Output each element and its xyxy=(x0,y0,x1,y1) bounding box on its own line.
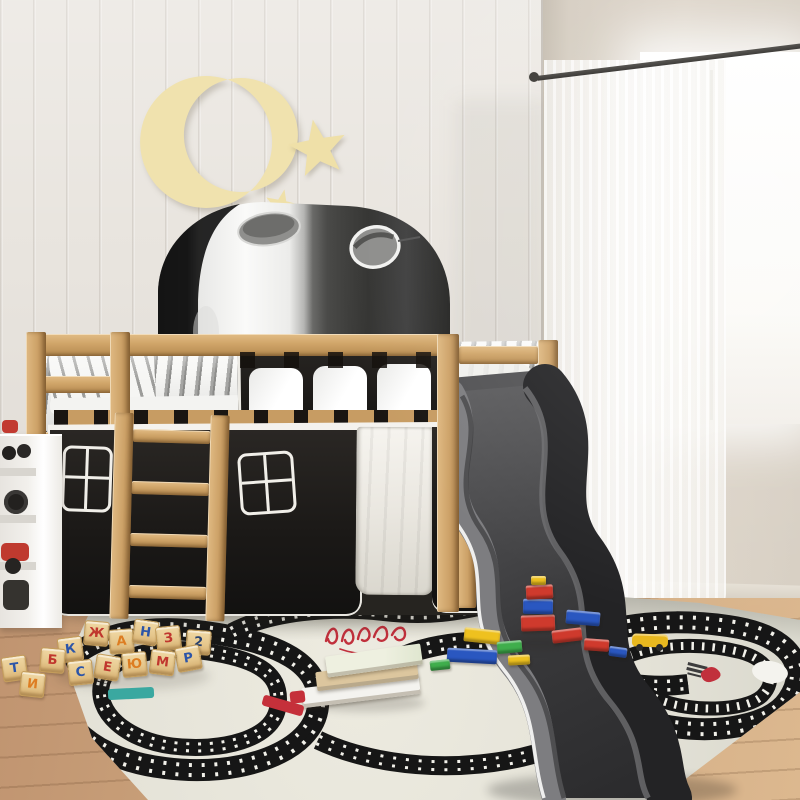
toy-brick xyxy=(523,599,553,615)
toy-brick xyxy=(526,584,554,599)
footboard-post-near xyxy=(437,334,459,612)
block-letter: Е xyxy=(102,660,113,674)
toy-brick xyxy=(521,614,556,631)
block-letter: И xyxy=(26,677,38,691)
toy-brick xyxy=(508,654,530,665)
block-letter: М xyxy=(155,655,169,669)
block-letter: Б xyxy=(47,654,58,668)
alphabet-block: Е xyxy=(93,653,122,682)
block-letter: Ж xyxy=(88,626,105,640)
block-letter: З xyxy=(163,632,174,646)
toy-brick xyxy=(584,638,610,652)
toy-brick xyxy=(531,576,546,585)
toy-brick xyxy=(565,610,600,627)
alphabet-block: Ю xyxy=(121,651,148,678)
alphabet-block: С xyxy=(67,659,94,686)
alphabet-block: Р xyxy=(174,644,203,673)
yellow-car-wheel-1 xyxy=(636,644,643,651)
block-letter: Р xyxy=(183,651,195,665)
toy-red-piece xyxy=(289,690,305,704)
alphabet-block: Ж xyxy=(83,620,110,647)
bedroom-scene: К Ж А Н З 2 Р М Ю Е С Б Т И xyxy=(0,0,800,800)
alphabet-block: И xyxy=(19,671,46,698)
toy-brick xyxy=(497,640,523,654)
toy-brick xyxy=(447,648,498,665)
block-letter: Т xyxy=(9,661,20,675)
block-letter: К xyxy=(64,642,76,656)
block-letter: А xyxy=(116,635,127,649)
alphabet-block: М xyxy=(149,649,177,677)
block-letter: С xyxy=(75,666,86,680)
alphabet-block: Б xyxy=(39,647,66,674)
block-letter: Н xyxy=(139,625,152,639)
yellow-car-wheel-2 xyxy=(656,644,663,651)
toy-brick xyxy=(430,659,451,671)
block-letter: Ю xyxy=(126,657,142,671)
